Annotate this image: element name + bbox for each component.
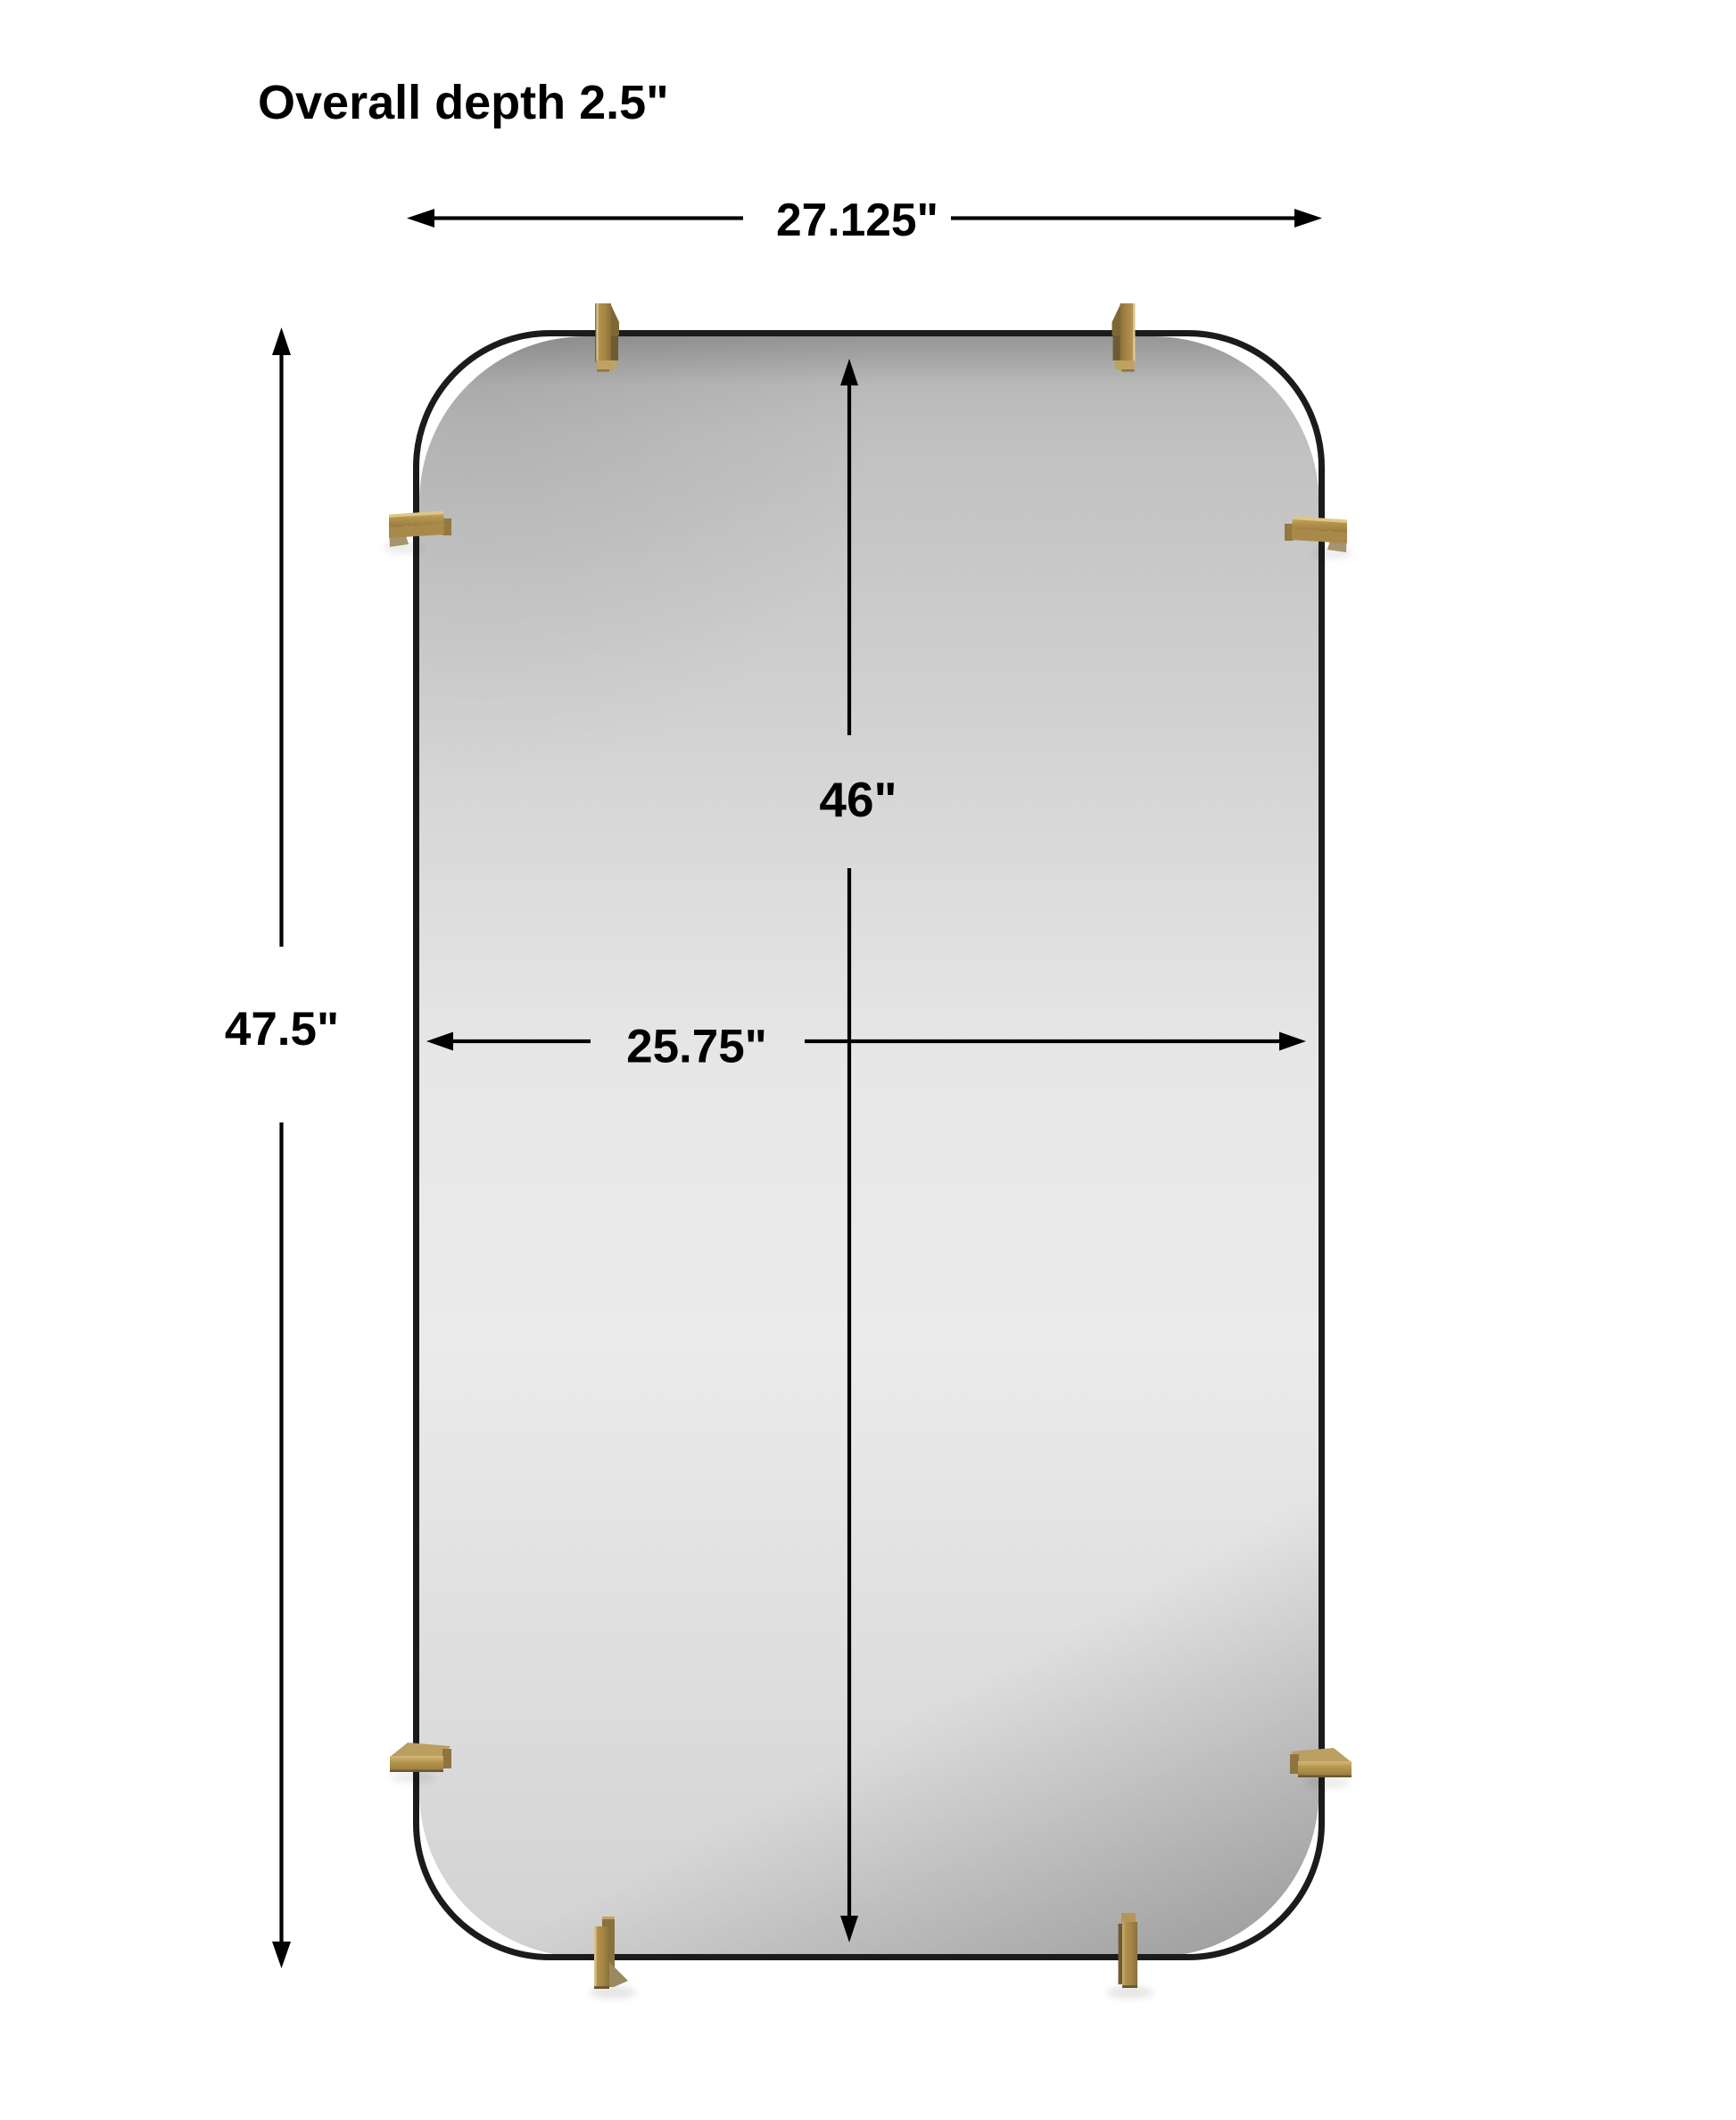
svg-text:Overall depth 2.5": Overall depth 2.5" [258,76,669,129]
svg-text:47.5": 47.5" [225,1003,339,1056]
svg-text:46": 46" [819,772,897,827]
svg-text:27.125": 27.125" [776,194,938,245]
svg-text:25.75": 25.75" [626,1021,767,1073]
